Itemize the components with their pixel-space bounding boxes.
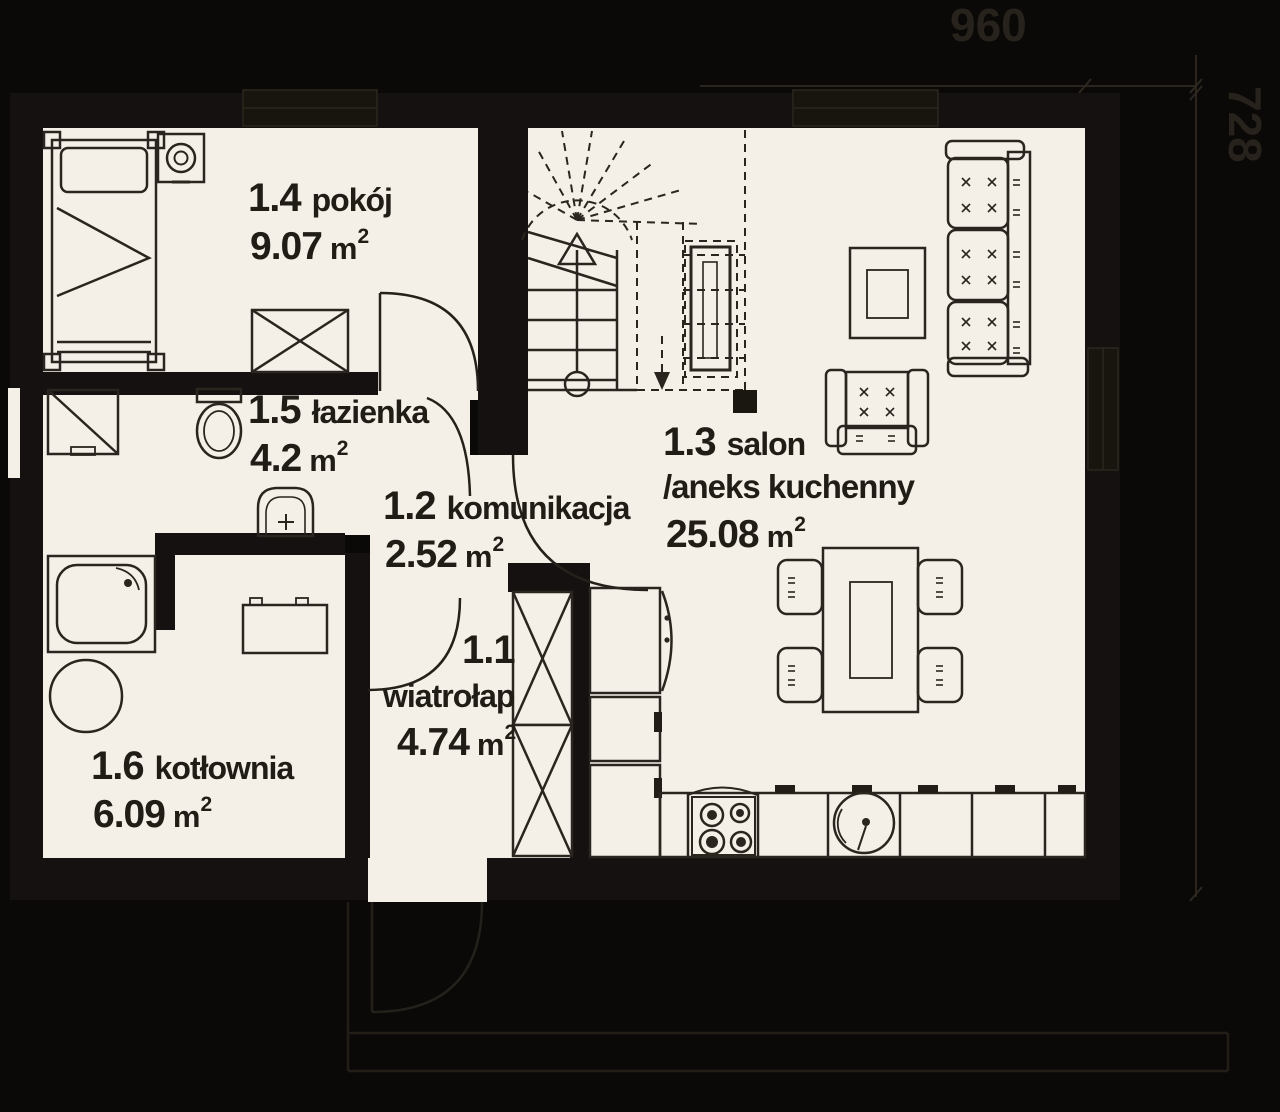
- room-label-lazienka: 1.5łazienka: [248, 390, 428, 430]
- left-wall-window: [8, 388, 20, 478]
- room-label-kotlownia: 1.6kotłownia: [91, 746, 293, 786]
- room-name: pokój: [312, 182, 392, 218]
- dimension-height-label: 728: [1222, 86, 1268, 163]
- stair-post: [733, 390, 757, 413]
- tall-cabinet-icon: [513, 592, 572, 856]
- dimension-width-label: 960: [950, 2, 1027, 48]
- wardrobe-icon: [252, 310, 348, 372]
- room-label-wiatrolap-name: wiatrołap: [383, 680, 514, 712]
- room-area-wiatrolap: 4.74m2: [397, 722, 515, 762]
- room-area-kotlownia: 6.09m2: [93, 794, 211, 834]
- room-label-komunikacja: 1.2komunikacja: [383, 486, 629, 526]
- room-number: 1.4: [248, 176, 301, 220]
- room-label-salon-line2: /aneks kuchenny: [663, 470, 914, 503]
- room-label-pokoj: 1.4pokój: [248, 178, 392, 218]
- floor-plan-page: 1.4pokój 9.07m2 1.5łazienka 4.2m2 1.2kom…: [0, 0, 1280, 1112]
- room-area-komunikacja: 2.52m2: [385, 534, 503, 574]
- room-label-wiatrolap-number: 1.1: [462, 630, 515, 670]
- room-area-salon: 25.08m2: [666, 514, 805, 554]
- floor-plan-drawing: [0, 0, 1280, 1112]
- room-label-salon: 1.3salon: [663, 422, 805, 462]
- room-area-pokoj: 9.07m2: [250, 226, 368, 266]
- room-area-lazienka: 4.2m2: [250, 438, 347, 478]
